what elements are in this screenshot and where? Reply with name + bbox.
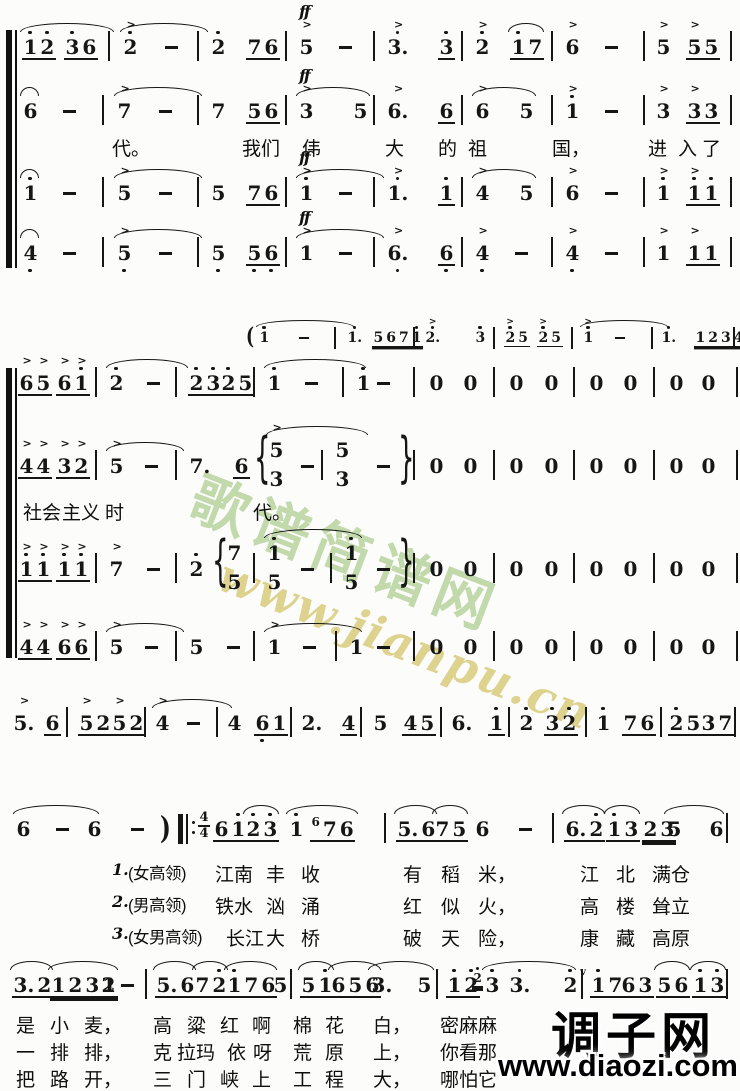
- barline: [643, 237, 645, 267]
- note-group: 1: [488, 712, 505, 736]
- lyric-syllable: 上: [252, 1065, 271, 1091]
- note: 3: [84, 974, 101, 996]
- dash-continuation: [146, 372, 162, 394]
- barline: [413, 327, 415, 349]
- barline: [643, 31, 645, 61]
- lyric-syllable: 高: [580, 892, 599, 919]
- lyric-syllable: 粱: [187, 1011, 206, 1038]
- note-group: 0: [622, 372, 639, 394]
- note-group: 13: [606, 818, 640, 842]
- note: 0: [508, 455, 525, 477]
- note: 3: [700, 712, 717, 734]
- note-group: 5>: [108, 636, 125, 658]
- slur-arc: [10, 961, 53, 970]
- note: 1>: [686, 182, 703, 204]
- note: 1: [258, 330, 271, 346]
- slur-arc: [153, 961, 196, 970]
- note-group: 13: [692, 974, 726, 998]
- note: 6: [310, 816, 321, 828]
- barline: [573, 367, 575, 397]
- note: 6: [22, 100, 39, 122]
- note-group: 56: [656, 974, 690, 998]
- note: 0: [588, 372, 605, 394]
- barline: [573, 450, 575, 480]
- accent-mark: >: [690, 166, 699, 176]
- octave-dot-above: [396, 177, 399, 180]
- note-group: 0: [543, 636, 560, 658]
- octave-dot-above: [661, 177, 664, 180]
- note: 7>: [116, 100, 133, 122]
- parenthesis: (: [246, 324, 254, 351]
- note: 4>: [474, 242, 491, 264]
- note-group: 3>ff: [298, 100, 315, 122]
- slur-arc: [394, 805, 437, 814]
- note-group: 0: [622, 636, 639, 658]
- note-group: 1>: [655, 242, 672, 264]
- note-group: 5.6: [155, 974, 196, 998]
- barline: [571, 327, 573, 349]
- octave-dot-above: [709, 177, 712, 180]
- note: 5: [372, 330, 385, 346]
- lyric-syllable: 白，: [373, 1011, 411, 1038]
- note: 1>: [298, 182, 315, 204]
- lyric-syllable: 路: [50, 1065, 69, 1091]
- note-group: 4>: [474, 182, 491, 204]
- note-group: 0: [428, 372, 445, 394]
- octave-dot-above: [518, 969, 521, 972]
- note: 2: [642, 818, 659, 840]
- note-group: 1: [348, 636, 365, 658]
- barline: [730, 237, 732, 267]
- system2-lyrics: 社会主义时代。: [0, 498, 740, 524]
- barline: [551, 177, 553, 207]
- note-group: 6>5>: [18, 372, 52, 396]
- lyric-syllable: 高原: [652, 924, 690, 951]
- lyric-syllable: 红: [220, 1011, 239, 1038]
- dash-continuation: [298, 330, 310, 352]
- lyric-syllable: 天: [441, 924, 460, 951]
- dash-continuation: [604, 36, 620, 58]
- note-group: 5>2: [78, 712, 112, 736]
- note: 5.: [396, 818, 420, 840]
- note: 0: [668, 372, 685, 394]
- barline: [95, 631, 97, 661]
- note-group: 5: [518, 100, 535, 122]
- dash-continuation: [62, 100, 78, 122]
- accent-mark: >: [82, 696, 91, 706]
- octave-dot-above: [674, 707, 677, 710]
- note: 5: [656, 974, 673, 996]
- dash-continuation: [304, 372, 320, 394]
- note: 5: [266, 571, 283, 593]
- note: 1: [703, 182, 720, 204]
- dash-continuation: [55, 818, 71, 840]
- dynamic-ff: ff: [299, 148, 309, 167]
- note: 6>: [18, 372, 35, 394]
- lyric-syllable: 火，: [478, 892, 516, 919]
- dynamic-ff: ff: [299, 208, 309, 227]
- note: 6>: [564, 36, 581, 58]
- watermark-diaozi-url: www.diaozi.com: [498, 1048, 738, 1084]
- barline: [730, 31, 732, 61]
- note: 6.>: [386, 100, 410, 122]
- octave-dot-above: [353, 326, 356, 329]
- note: 4>: [18, 455, 35, 477]
- note: 6>: [73, 636, 90, 658]
- note: 0: [428, 372, 445, 394]
- accent-mark: >: [659, 166, 668, 176]
- accent-mark: >: [302, 20, 311, 30]
- note-group: 4>: [154, 712, 171, 734]
- note: 5>: [108, 636, 125, 658]
- barline: [216, 707, 218, 737]
- note-group: 0: [622, 558, 639, 580]
- note: 7>: [108, 558, 125, 580]
- note-group: 1: [355, 372, 372, 394]
- note: 2: [518, 712, 535, 734]
- note-group: 5.>: [12, 712, 36, 734]
- note-group: 7>: [108, 558, 125, 580]
- note-group: 0: [668, 455, 685, 477]
- barline: [436, 969, 438, 999]
- note: 2: [220, 372, 237, 394]
- barline: [175, 631, 177, 661]
- barline: [290, 969, 292, 999]
- lyric-syllable: 麻: [478, 1011, 497, 1038]
- dash-continuation: [300, 558, 316, 580]
- note: 6: [438, 100, 455, 122]
- barline: [573, 631, 575, 661]
- barline: [66, 707, 68, 737]
- note: 5: [300, 974, 317, 996]
- lyric-syllable: 门: [187, 1065, 206, 1091]
- note: 0: [543, 372, 560, 394]
- system-barline-thick: [6, 30, 12, 268]
- note: 2: [245, 818, 262, 840]
- note-group: 4>4>: [18, 636, 52, 660]
- accent-mark: >: [568, 20, 577, 30]
- note: 6>: [564, 182, 581, 204]
- note: 7: [622, 712, 639, 734]
- note: 0: [588, 636, 605, 658]
- note: 0: [543, 455, 560, 477]
- lyric-syllable: 它: [478, 1065, 497, 1091]
- note: 1: [694, 330, 707, 346]
- note-group: 0: [508, 372, 525, 394]
- note: 5: [343, 571, 360, 593]
- barline: [321, 450, 323, 480]
- note-group: 5>2: [111, 712, 145, 736]
- octave-dot-above: [24, 553, 27, 556]
- lyric-syllable: 荒: [293, 1038, 312, 1065]
- dash-continuation: [376, 372, 392, 394]
- dash-continuation: [338, 36, 354, 58]
- note: 2>: [474, 36, 491, 58]
- dash-continuation: [120, 974, 136, 996]
- lyric-syllable: 大: [385, 134, 404, 161]
- note: 4>: [35, 636, 52, 658]
- barline: [726, 969, 728, 999]
- dash-continuation: [300, 455, 316, 477]
- barline: [373, 31, 375, 61]
- accent-mark: >: [39, 356, 48, 366]
- barline: [197, 31, 199, 61]
- note-group: 6: [708, 818, 725, 840]
- note: 0: [622, 372, 639, 394]
- note: 1>: [266, 636, 283, 658]
- note: 1: [22, 182, 39, 204]
- accent-mark: >: [39, 542, 48, 552]
- barline: [551, 237, 553, 267]
- note-group: 1>1>: [18, 558, 52, 582]
- note: 3: [474, 330, 487, 346]
- lyric-syllable: 把: [16, 1065, 35, 1091]
- barline: [175, 450, 177, 480]
- barline: [102, 95, 104, 125]
- note-group: 5: [666, 818, 683, 840]
- barline: [413, 631, 415, 661]
- note: 7: [246, 182, 263, 204]
- barline: [360, 707, 362, 737]
- note: 6: [44, 712, 61, 734]
- note: 1.>: [386, 182, 410, 204]
- note-group: 1>ff: [298, 182, 315, 204]
- note-group: 1: [266, 372, 283, 394]
- note: 5>: [78, 712, 95, 734]
- note: 6: [385, 330, 398, 346]
- note: 1>: [655, 242, 672, 264]
- note: 2>: [504, 330, 517, 346]
- note-group: 7: [210, 100, 227, 122]
- note-group: 7>: [116, 100, 133, 122]
- note-group: 0: [462, 455, 479, 477]
- lyric-syllable: 一: [16, 1038, 35, 1065]
- note: 0: [508, 558, 525, 580]
- barline: [373, 177, 375, 207]
- lyric-syllable: 哪怕: [440, 1065, 478, 1091]
- lyric-syllable: 2.: [112, 892, 129, 911]
- note-group: 3.: [508, 974, 532, 996]
- barline: [660, 707, 662, 737]
- barline: [334, 327, 336, 349]
- note: 2v: [562, 974, 579, 996]
- note: 3: [623, 818, 640, 840]
- dash-continuation: [302, 636, 318, 658]
- barline: [736, 553, 738, 583]
- octave-dot-above: [550, 707, 553, 710]
- accent-mark: >: [77, 439, 86, 449]
- note: 1: [266, 542, 283, 564]
- lyric-syllable: 排: [50, 1038, 69, 1065]
- note: 1>: [298, 242, 315, 264]
- note-group: 676: [310, 818, 355, 842]
- dash-continuation: [226, 636, 242, 658]
- note: 6>: [56, 372, 73, 394]
- note: 1>: [56, 558, 73, 580]
- note-group: 75: [434, 818, 468, 842]
- note: 1.: [346, 330, 364, 346]
- chord: 5>3: [268, 439, 285, 490]
- note: 4: [402, 712, 419, 734]
- note: 3>: [655, 100, 672, 122]
- lyric-syllable: 长江: [226, 924, 264, 951]
- barline: [734, 707, 736, 737]
- accent-mark: >: [429, 317, 437, 327]
- barline: [144, 707, 146, 737]
- octave-dot-above: [444, 31, 447, 34]
- lyric-syllable: 那: [478, 1038, 497, 1065]
- accent-mark: >: [22, 439, 31, 449]
- lyric-syllable: 有: [403, 860, 422, 887]
- note: 6: [15, 818, 32, 840]
- note-group: 0: [668, 558, 685, 580]
- note-group: 0: [700, 636, 717, 658]
- note: 7: [398, 330, 411, 346]
- barline: [643, 177, 645, 207]
- note: 1: [438, 182, 455, 204]
- lyric-syllable: 红: [403, 892, 422, 919]
- note-group: 7.: [188, 455, 212, 477]
- barline: [342, 367, 344, 397]
- note: 6.>: [386, 242, 410, 264]
- note: 0: [508, 636, 525, 658]
- slur-arc: [604, 805, 640, 814]
- octave-dot-below: [396, 269, 399, 272]
- dash-continuation: [62, 242, 78, 264]
- lyric-syllable: 小: [50, 1011, 69, 1038]
- note: 3: [703, 100, 720, 122]
- note: 5: [334, 439, 351, 461]
- lyric-syllable: 楼: [616, 892, 635, 919]
- lyric-syllable: 汹: [266, 892, 285, 919]
- octave-dot-above: [692, 177, 695, 180]
- note-group: 5: [210, 242, 227, 264]
- barline: [175, 367, 177, 397]
- note-group: 1>ff: [298, 242, 315, 264]
- note-group: 0: [543, 372, 560, 394]
- note: 3>: [56, 455, 73, 477]
- note: 0: [462, 558, 479, 580]
- barline: [730, 177, 732, 207]
- note-group: 6>: [474, 100, 491, 122]
- note: 4>: [35, 455, 52, 477]
- note-group: 3>2>: [56, 455, 90, 479]
- note-group: 1>: [266, 636, 283, 658]
- note: 1>: [73, 372, 90, 394]
- note: 2: [707, 330, 720, 346]
- lyric-syllable: 时: [105, 498, 124, 525]
- note: 1>: [686, 242, 703, 264]
- note: 5: [226, 571, 243, 593]
- dash-continuation: [144, 636, 160, 658]
- slur-arc: [664, 805, 724, 814]
- accent-mark: >: [690, 226, 699, 236]
- barline: [384, 813, 386, 843]
- barline: [285, 95, 287, 125]
- note-group: 32: [544, 712, 578, 736]
- note-group: 25: [220, 372, 254, 396]
- accent-mark: >: [115, 696, 124, 706]
- slur-arc: [20, 169, 39, 178]
- note: 2>: [537, 330, 550, 346]
- note: 4: [226, 712, 243, 734]
- note: 6: [438, 242, 455, 264]
- note-group: 0: [543, 558, 560, 580]
- note-group: 2.: [300, 712, 324, 734]
- note-group: 0: [428, 558, 445, 580]
- barline: [373, 95, 375, 125]
- lyric-syllable: 康: [580, 924, 599, 951]
- slur-arc: [432, 805, 468, 814]
- octave-dot-above: [396, 31, 399, 34]
- note-group: 5: [188, 636, 205, 658]
- system1-lyrics: 代。我们伟大的祖国，进入了: [0, 134, 740, 160]
- note: 1>: [73, 558, 90, 580]
- system1-voice3: 15>5761>ff1.>14>56>1>1>1: [0, 182, 740, 208]
- note-group: 2: [472, 974, 483, 988]
- note-group: 4>4>: [18, 455, 52, 479]
- note: 5>: [35, 372, 52, 394]
- barline: [551, 95, 553, 125]
- note-group: 5: [518, 182, 535, 204]
- slur-arc: [654, 961, 690, 970]
- lyric-syllable: 似: [441, 892, 460, 919]
- barline: [508, 707, 510, 737]
- accent-mark: >: [394, 20, 403, 30]
- note-group: 5: [416, 974, 433, 996]
- note-group: 23: [245, 818, 279, 842]
- barline: [290, 707, 292, 737]
- barline: [573, 553, 575, 583]
- lyric-syllable: 啊: [252, 1011, 271, 1038]
- accent-mark: >: [659, 226, 668, 236]
- slur-arc: [508, 23, 544, 32]
- note-group: 3.: [370, 974, 394, 996]
- lyric-syllable: 1.: [112, 860, 129, 879]
- accent-mark: >: [478, 226, 487, 236]
- note: 5: [451, 818, 468, 840]
- note-group: 45: [402, 712, 436, 736]
- note-group: 5>: [116, 242, 133, 264]
- slur-arc: [472, 87, 536, 96]
- slur-arc: [482, 961, 576, 970]
- note: 5>: [686, 36, 703, 58]
- barline: [461, 31, 463, 61]
- note-group: 5>5: [686, 36, 720, 60]
- note: 2: [39, 36, 56, 58]
- note-group: 1.>: [386, 182, 410, 204]
- note: 6: [708, 818, 725, 840]
- barline: [373, 237, 375, 267]
- note: 3: [262, 818, 279, 840]
- note-group: 3>: [655, 100, 672, 122]
- note: 1: [595, 712, 612, 734]
- note-group: 6>6>: [56, 636, 90, 660]
- accent-mark: >: [60, 356, 69, 366]
- note: 2: [588, 818, 605, 840]
- note-group: 2: [210, 36, 227, 58]
- accent-mark: >: [478, 20, 487, 30]
- note: 6: [263, 182, 280, 204]
- lyric-syllable: 江: [580, 860, 599, 887]
- accent-mark: >: [568, 226, 577, 236]
- barline: [102, 177, 104, 207]
- note: 3: [334, 468, 351, 490]
- note: 2: [128, 712, 145, 734]
- octave-dot-above: [41, 553, 44, 556]
- dash-continuation: [158, 182, 174, 204]
- note-group: 25: [668, 712, 702, 736]
